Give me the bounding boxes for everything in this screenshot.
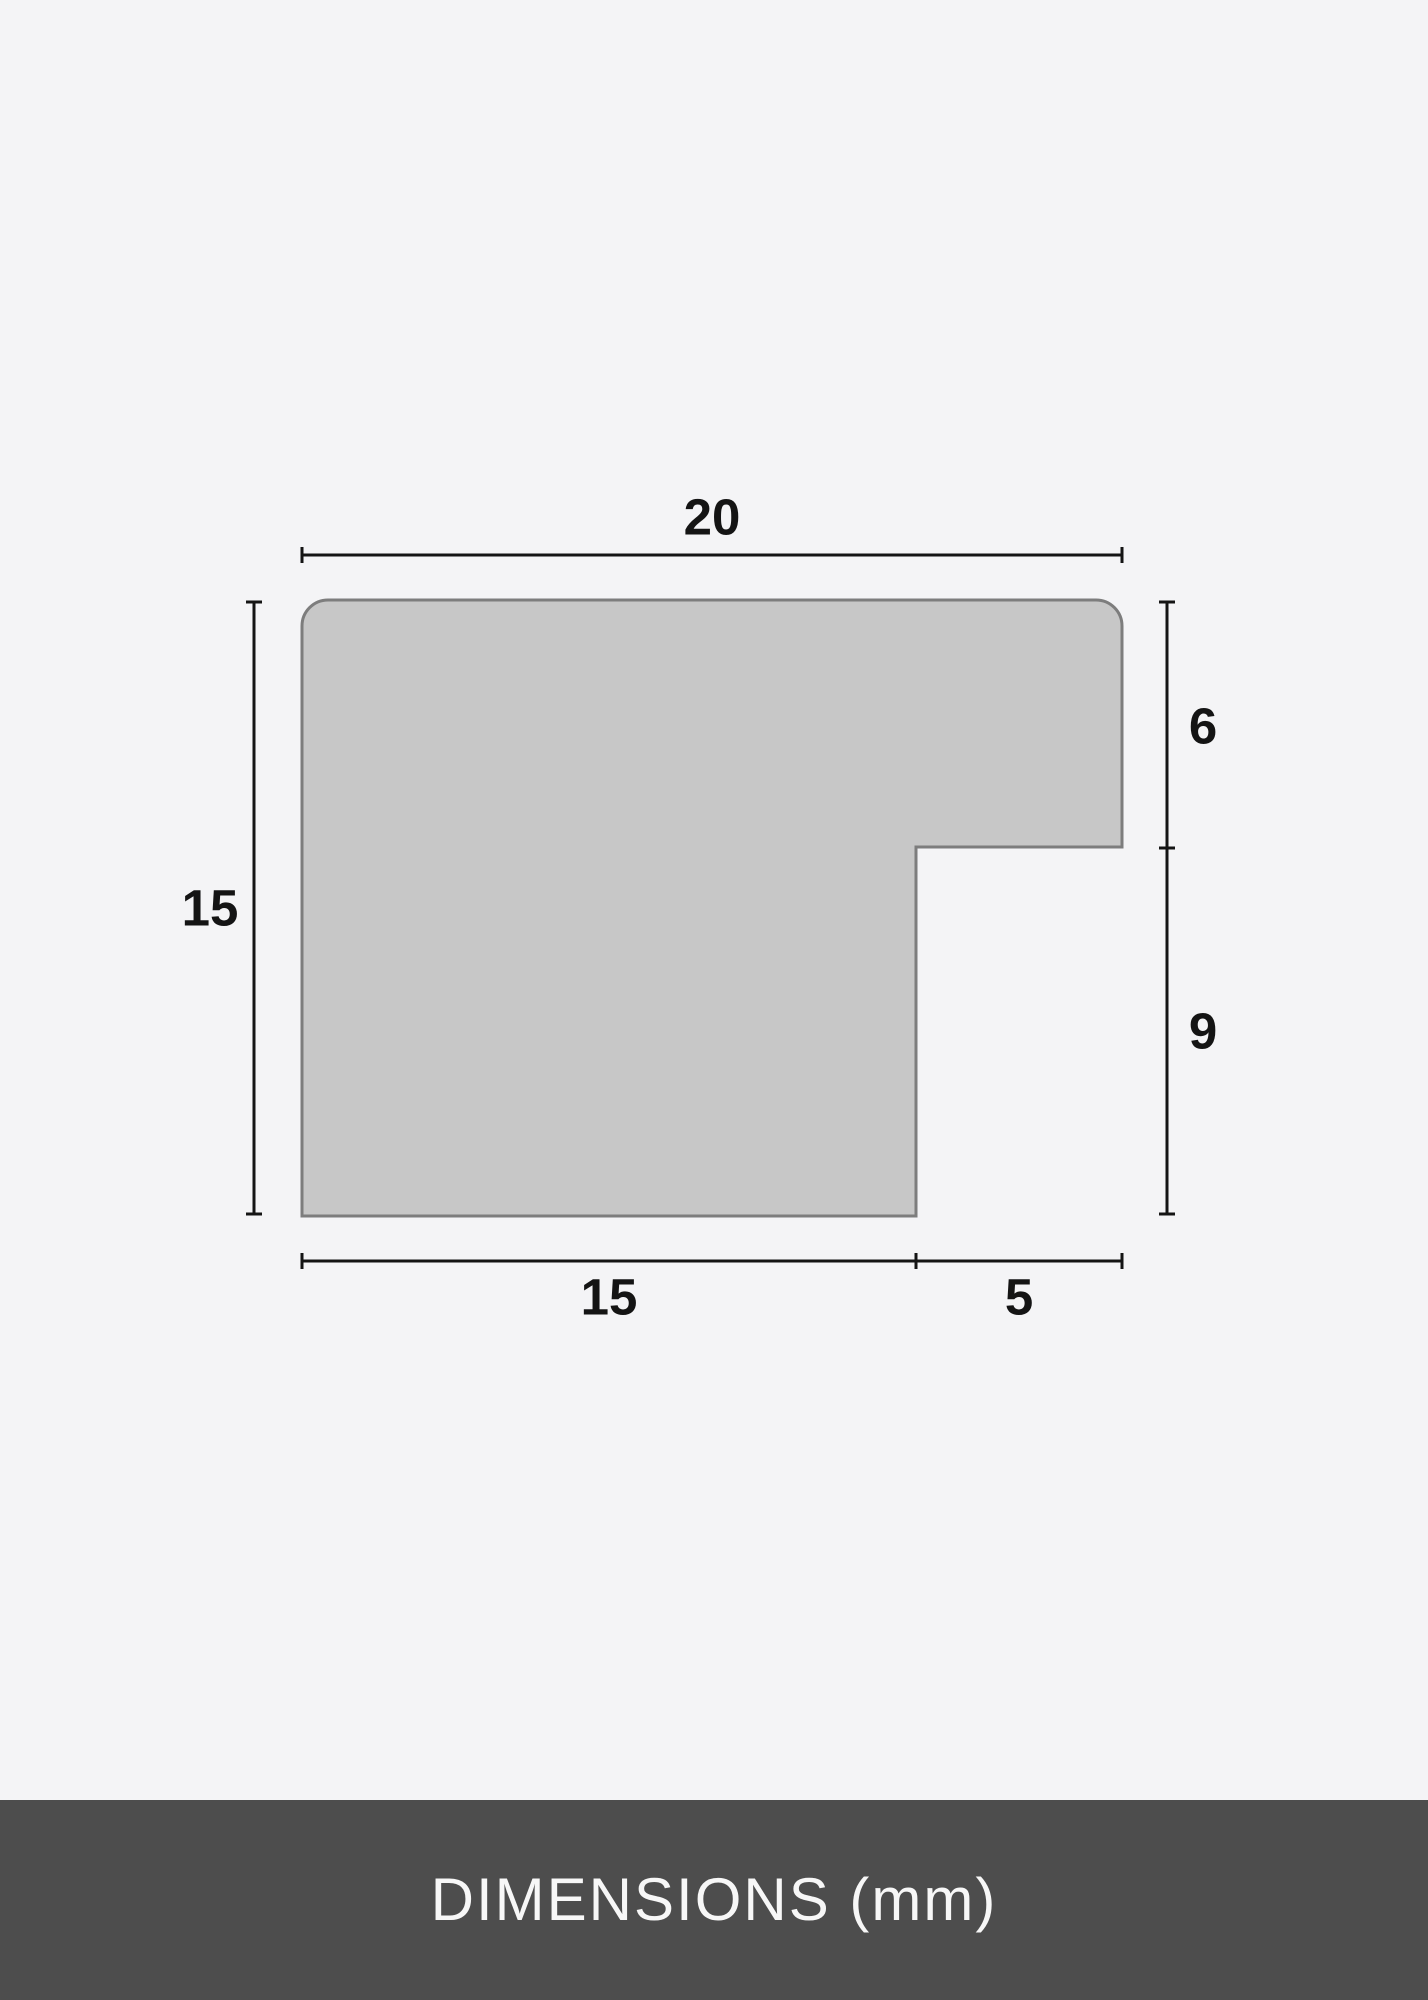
- footer-title: DIMENSIONS (mm): [431, 1870, 998, 1930]
- footer-bar: DIMENSIONS (mm): [0, 1800, 1428, 2000]
- dim-line-left-height: [246, 602, 262, 1214]
- dimension-label-top-width: 20: [684, 492, 741, 543]
- dim-line-top-width: [302, 547, 1122, 563]
- dimension-label-bottom-right-width: 5: [1005, 1272, 1033, 1323]
- dim-line-bottom-widths: [302, 1253, 1122, 1269]
- dim-line-right-heights: [1159, 602, 1175, 1214]
- profile-cross-section: [302, 600, 1122, 1216]
- dimension-label-right-upper-height: 6: [1189, 701, 1217, 752]
- profile-diagram: [0, 0, 1428, 2000]
- dimension-label-right-lower-height: 9: [1189, 1006, 1217, 1057]
- dimension-label-left-height: 15: [182, 883, 239, 934]
- diagram-canvas: 20 15 6 9 15 5 DIMENSIONS (mm): [0, 0, 1428, 2000]
- dimension-label-bottom-left-width: 15: [581, 1272, 638, 1323]
